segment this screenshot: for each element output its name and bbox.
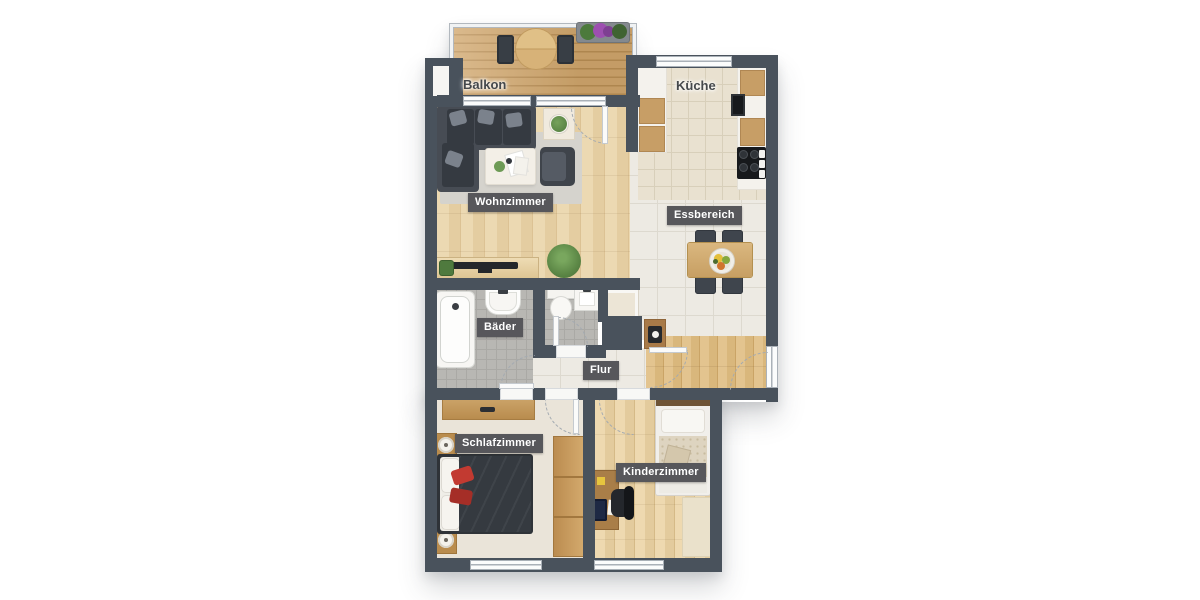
- coffee-table-paper: [514, 157, 528, 175]
- nightstand-lamp-center: [444, 443, 448, 447]
- sofa-pillow: [477, 109, 495, 126]
- bathtub-drain: [452, 303, 459, 310]
- wardrobe-divider: [554, 476, 583, 478]
- toilet-bowl: [551, 297, 571, 319]
- desk-chair-back: [624, 486, 634, 520]
- stove-burner: [750, 150, 759, 159]
- floorplan-canvas: Balkon Küche Wohnzimmer Essbereich Bäder…: [0, 0, 1200, 600]
- room-label-essbereich: Essbereich: [667, 206, 742, 225]
- stove-knob: [759, 150, 765, 158]
- window-kitchen: [656, 56, 732, 67]
- kitchen-cabinet: [639, 126, 665, 152]
- dresser-handle: [480, 407, 495, 412]
- armchair-seat: [542, 152, 566, 181]
- fruit-orange: [717, 262, 725, 270]
- balcony-chair-right: [557, 35, 574, 64]
- stove-burner: [739, 163, 748, 172]
- balcony-door-leaf: [603, 107, 607, 143]
- wardrobe: [554, 437, 583, 556]
- sofa-pillow: [505, 112, 523, 128]
- dining-chair: [695, 275, 716, 294]
- kidsroom-door-opening: [617, 388, 650, 400]
- single-bed-pillow: [661, 409, 705, 433]
- room-label-kueche: Küche: [676, 78, 716, 93]
- wall-left: [425, 58, 437, 572]
- balcony-table: [516, 29, 556, 69]
- laptop: [593, 499, 607, 521]
- wall-oven: [731, 94, 745, 116]
- console-plant-pot: [652, 331, 659, 338]
- wall-kitchen-left: [626, 55, 638, 152]
- window-bedroom: [470, 560, 542, 570]
- kitchen-cabinet: [639, 98, 665, 124]
- planter-greenery: [612, 24, 627, 39]
- stove-burner: [739, 150, 748, 159]
- nightstand-lamp-center: [444, 538, 448, 542]
- window-living: [463, 96, 531, 106]
- wall-bedrooms-top-c: [578, 388, 617, 400]
- room-label-balkon: Balkon: [463, 77, 506, 92]
- stove-knob: [759, 160, 765, 168]
- wall-bedrooms-top-a: [425, 388, 500, 400]
- room-label-baeder: Bäder: [477, 318, 523, 337]
- kitchen-cabinet: [740, 118, 765, 146]
- wall-bedroom-divider: [583, 400, 595, 558]
- single-bed-headboard: [656, 400, 710, 406]
- wall-wc-bottom-left: [533, 345, 556, 358]
- wc-sink-basin: [579, 292, 595, 306]
- wall-bath-wc: [533, 290, 545, 348]
- room-label-flur: Flur: [583, 361, 619, 380]
- tv-stand: [478, 269, 492, 273]
- bedroom-door-leaf: [574, 400, 578, 433]
- room-label-wohnzimmer: Wohnzimmer: [468, 193, 553, 212]
- fruit-leaf: [713, 259, 718, 264]
- wc-door-leaf: [554, 317, 558, 345]
- dining-chair: [722, 275, 743, 294]
- sticky-note: [597, 477, 605, 485]
- bedroom-door-opening: [545, 388, 578, 400]
- side-table-plant: [551, 116, 567, 132]
- balcony-door-glass: [536, 96, 606, 106]
- wall-closet-block: [602, 316, 642, 350]
- room-label-kinderzimmer: Kinderzimmer: [616, 463, 706, 482]
- room-label-schlafzimmer: Schlafzimmer: [455, 434, 543, 453]
- stove-knob: [759, 170, 765, 178]
- wall-kidsroom-right: [710, 400, 722, 572]
- sideboard-plant-box: [440, 261, 453, 275]
- kids-rug: [682, 497, 712, 557]
- hall-door-leaf: [650, 348, 686, 352]
- coffee-table-plant: [494, 161, 505, 172]
- kitchen-cabinet: [740, 70, 765, 96]
- tv-unit: [452, 262, 518, 269]
- potted-plant: [547, 244, 581, 278]
- wall-bath-top: [425, 278, 640, 290]
- coffee-table-cup: [506, 158, 512, 164]
- bath-door-leaf: [500, 384, 533, 388]
- wardrobe-divider: [554, 516, 583, 518]
- stove-burner: [750, 163, 759, 172]
- wall-wc-bottom-right: [586, 345, 606, 358]
- corner-niche: [433, 66, 449, 96]
- balcony-chair-left: [497, 35, 514, 64]
- window-kidsroom: [594, 560, 664, 570]
